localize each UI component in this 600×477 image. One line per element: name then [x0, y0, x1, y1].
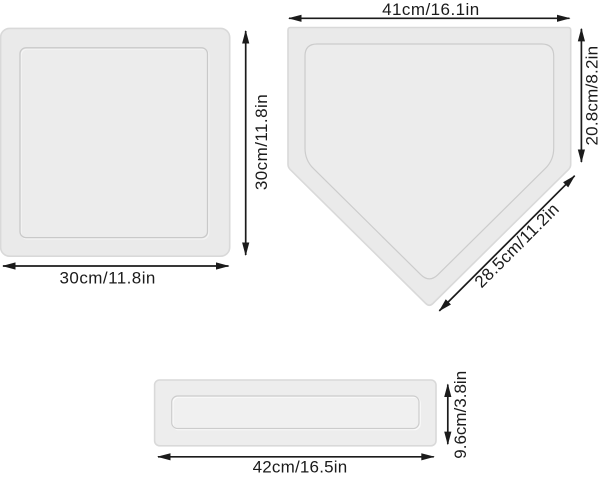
- svg-text:9.6cm/3.8in: 9.6cm/3.8in: [451, 371, 470, 459]
- svg-text:41cm/16.1in: 41cm/16.1in: [382, 0, 480, 19]
- svg-text:20.8cm/8.2in: 20.8cm/8.2in: [582, 46, 600, 146]
- svg-text:30cm/11.8in: 30cm/11.8in: [252, 94, 271, 190]
- svg-text:42cm/16.5in: 42cm/16.5in: [253, 457, 348, 476]
- svg-text:30cm/11.8in: 30cm/11.8in: [60, 269, 156, 288]
